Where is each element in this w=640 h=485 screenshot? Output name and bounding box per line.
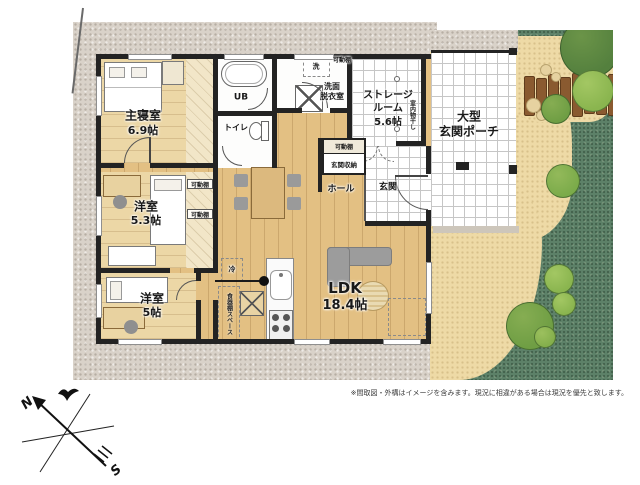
tree [572, 70, 613, 112]
storage-size: 5.6帖 [374, 118, 402, 129]
site-strip-above-porch [430, 30, 518, 52]
tree [541, 94, 571, 124]
window [128, 54, 172, 60]
compass-line-2 [40, 394, 90, 472]
movable-shelf-label: 可動棚 [191, 210, 209, 219]
porch-name-line2: 玄関ポーチ [439, 126, 499, 139]
bed-master [104, 62, 162, 112]
window [383, 339, 421, 345]
window [118, 339, 162, 345]
pillow [131, 67, 147, 78]
wall-master-bottom-right [150, 163, 218, 168]
cabinet-bedroom2 [108, 246, 156, 266]
entrance-porch-floor [431, 52, 516, 226]
entrance-step-line [364, 174, 366, 221]
bedroom3-name: 洋室 [140, 293, 164, 306]
wall-washroom-bottom-left [277, 108, 302, 113]
master-bedroom-name: 主寝室 [125, 110, 161, 123]
ldk-name: LDK [328, 281, 362, 297]
movable-shelf-tag: 可動棚 [187, 179, 213, 189]
counter-post-dot [259, 276, 269, 286]
movable-shelf-cell: 可動棚 [324, 140, 364, 154]
toilet-tank [261, 121, 269, 141]
dining-chair [234, 197, 248, 210]
wall-bedroom2-bottom-left [96, 268, 170, 273]
movable-shelf-label-washroom: 可動棚 [333, 58, 351, 64]
bedroom2-name: 洋室 [134, 201, 158, 214]
chair-bedroom3 [124, 320, 138, 334]
bathtub-inner [225, 64, 263, 84]
wall-storage-bottom-right [396, 141, 426, 146]
stove-burner [283, 325, 290, 332]
kitchen-storage-box [240, 291, 264, 316]
window [96, 284, 102, 318]
counter-line [215, 280, 265, 282]
floor-plan-scene: 可動棚 玄関収納 可動棚 可動棚 可動棚 主寝室 6.9帖 洋室 5.3帖 洋室… [0, 0, 640, 485]
unit-bath-label: UB [234, 93, 248, 102]
storage-name-line1: ストレージ [363, 91, 413, 102]
dining-chair [287, 197, 301, 210]
dining-table [251, 167, 285, 219]
entrance-label: 玄関 [379, 183, 397, 192]
window [294, 54, 334, 60]
wall-kitchen-corridor [213, 300, 218, 344]
stove-burner [283, 314, 290, 321]
porch-step-block [456, 162, 469, 170]
storage-name-line2: ルーム [373, 104, 403, 115]
master-bedroom-closet [186, 59, 213, 163]
chair-bedroom2 [113, 195, 127, 209]
bush [552, 292, 576, 316]
kitchen-faucet [279, 273, 283, 277]
compass-south-label: S [108, 462, 125, 480]
washing-machine-label: 洗 [313, 63, 320, 70]
washroom-label-line1: 洗面 [324, 83, 340, 91]
bathtub [221, 61, 267, 87]
dresser-master [162, 61, 184, 85]
pillow [109, 67, 125, 78]
hall-label: ホール [327, 185, 354, 194]
wall-entrance-bottom [365, 221, 431, 226]
porch-post [509, 165, 517, 174]
stove-burner [272, 314, 279, 321]
entrance-storage-label: 玄関収納 [331, 159, 357, 169]
dining-chair [287, 174, 301, 187]
movable-shelf-label: 可動棚 [191, 180, 209, 189]
wall-ub-toilet [218, 111, 272, 116]
washroom-label-line2: 脱衣室 [320, 93, 344, 101]
compass-feather [94, 454, 104, 462]
kitchen-counter [266, 258, 294, 344]
wall-bedroom3-right-stub [196, 273, 201, 281]
master-door-leaf [149, 137, 151, 163]
toilet-label: トイレ [224, 124, 248, 132]
ldk-dashed-area [388, 298, 426, 336]
entrance-storage-cell: 玄関収納 [324, 154, 364, 174]
stepping-stone [551, 72, 561, 82]
wall-master-bottom-left [96, 163, 124, 168]
compass: N S [14, 384, 126, 484]
wall-washroom-right [347, 54, 352, 146]
stove-burner [272, 325, 279, 332]
hall-closet-block: 可動棚 玄関収納 [322, 138, 366, 175]
wall-corridor [213, 168, 218, 268]
cupboard-space-label: 食器棚スペース [225, 293, 234, 335]
pillow [110, 281, 122, 300]
movable-shelf-tag: 可動棚 [187, 209, 213, 219]
tree [546, 164, 580, 198]
bird-icon [58, 389, 79, 401]
compass-feather [98, 450, 108, 458]
window [224, 54, 264, 60]
bedroom2-size: 5.3帖 [131, 215, 162, 227]
porch-top-wall [431, 50, 517, 53]
entrance-door-leaf [395, 175, 428, 177]
dining-chair [234, 174, 248, 187]
indoor-drying-label: 室内物干し [408, 100, 417, 130]
window [294, 339, 330, 345]
wall-storage-right [421, 54, 426, 146]
blanket-line [105, 87, 161, 88]
compass-feather [102, 446, 112, 454]
bedroom3-size: 5帖 [143, 307, 162, 319]
bush [534, 326, 556, 348]
window [96, 196, 102, 236]
wall-bedroom3-right [196, 300, 201, 344]
porch-name-line1: 大型 [457, 111, 481, 124]
stepping-stone [540, 64, 552, 76]
porch-post [509, 48, 517, 55]
porch-step [433, 226, 519, 233]
disclaimer-text: ※間取図・外構はイメージを含みます。現況に相違がある場合は現況を優先と致します。 [351, 388, 628, 398]
ldk-size: 18.4帖 [322, 299, 367, 313]
refrigerator-label: 冷 [229, 266, 236, 273]
pillow [154, 179, 182, 191]
desk-bedroom2 [103, 175, 141, 197]
window [426, 262, 432, 314]
drying-hook [394, 76, 400, 82]
master-bedroom-size: 6.9帖 [128, 125, 159, 137]
window [96, 76, 102, 116]
wall-right-above-door [426, 146, 431, 174]
movable-shelf-label: 可動棚 [335, 142, 353, 151]
bush [544, 264, 574, 294]
